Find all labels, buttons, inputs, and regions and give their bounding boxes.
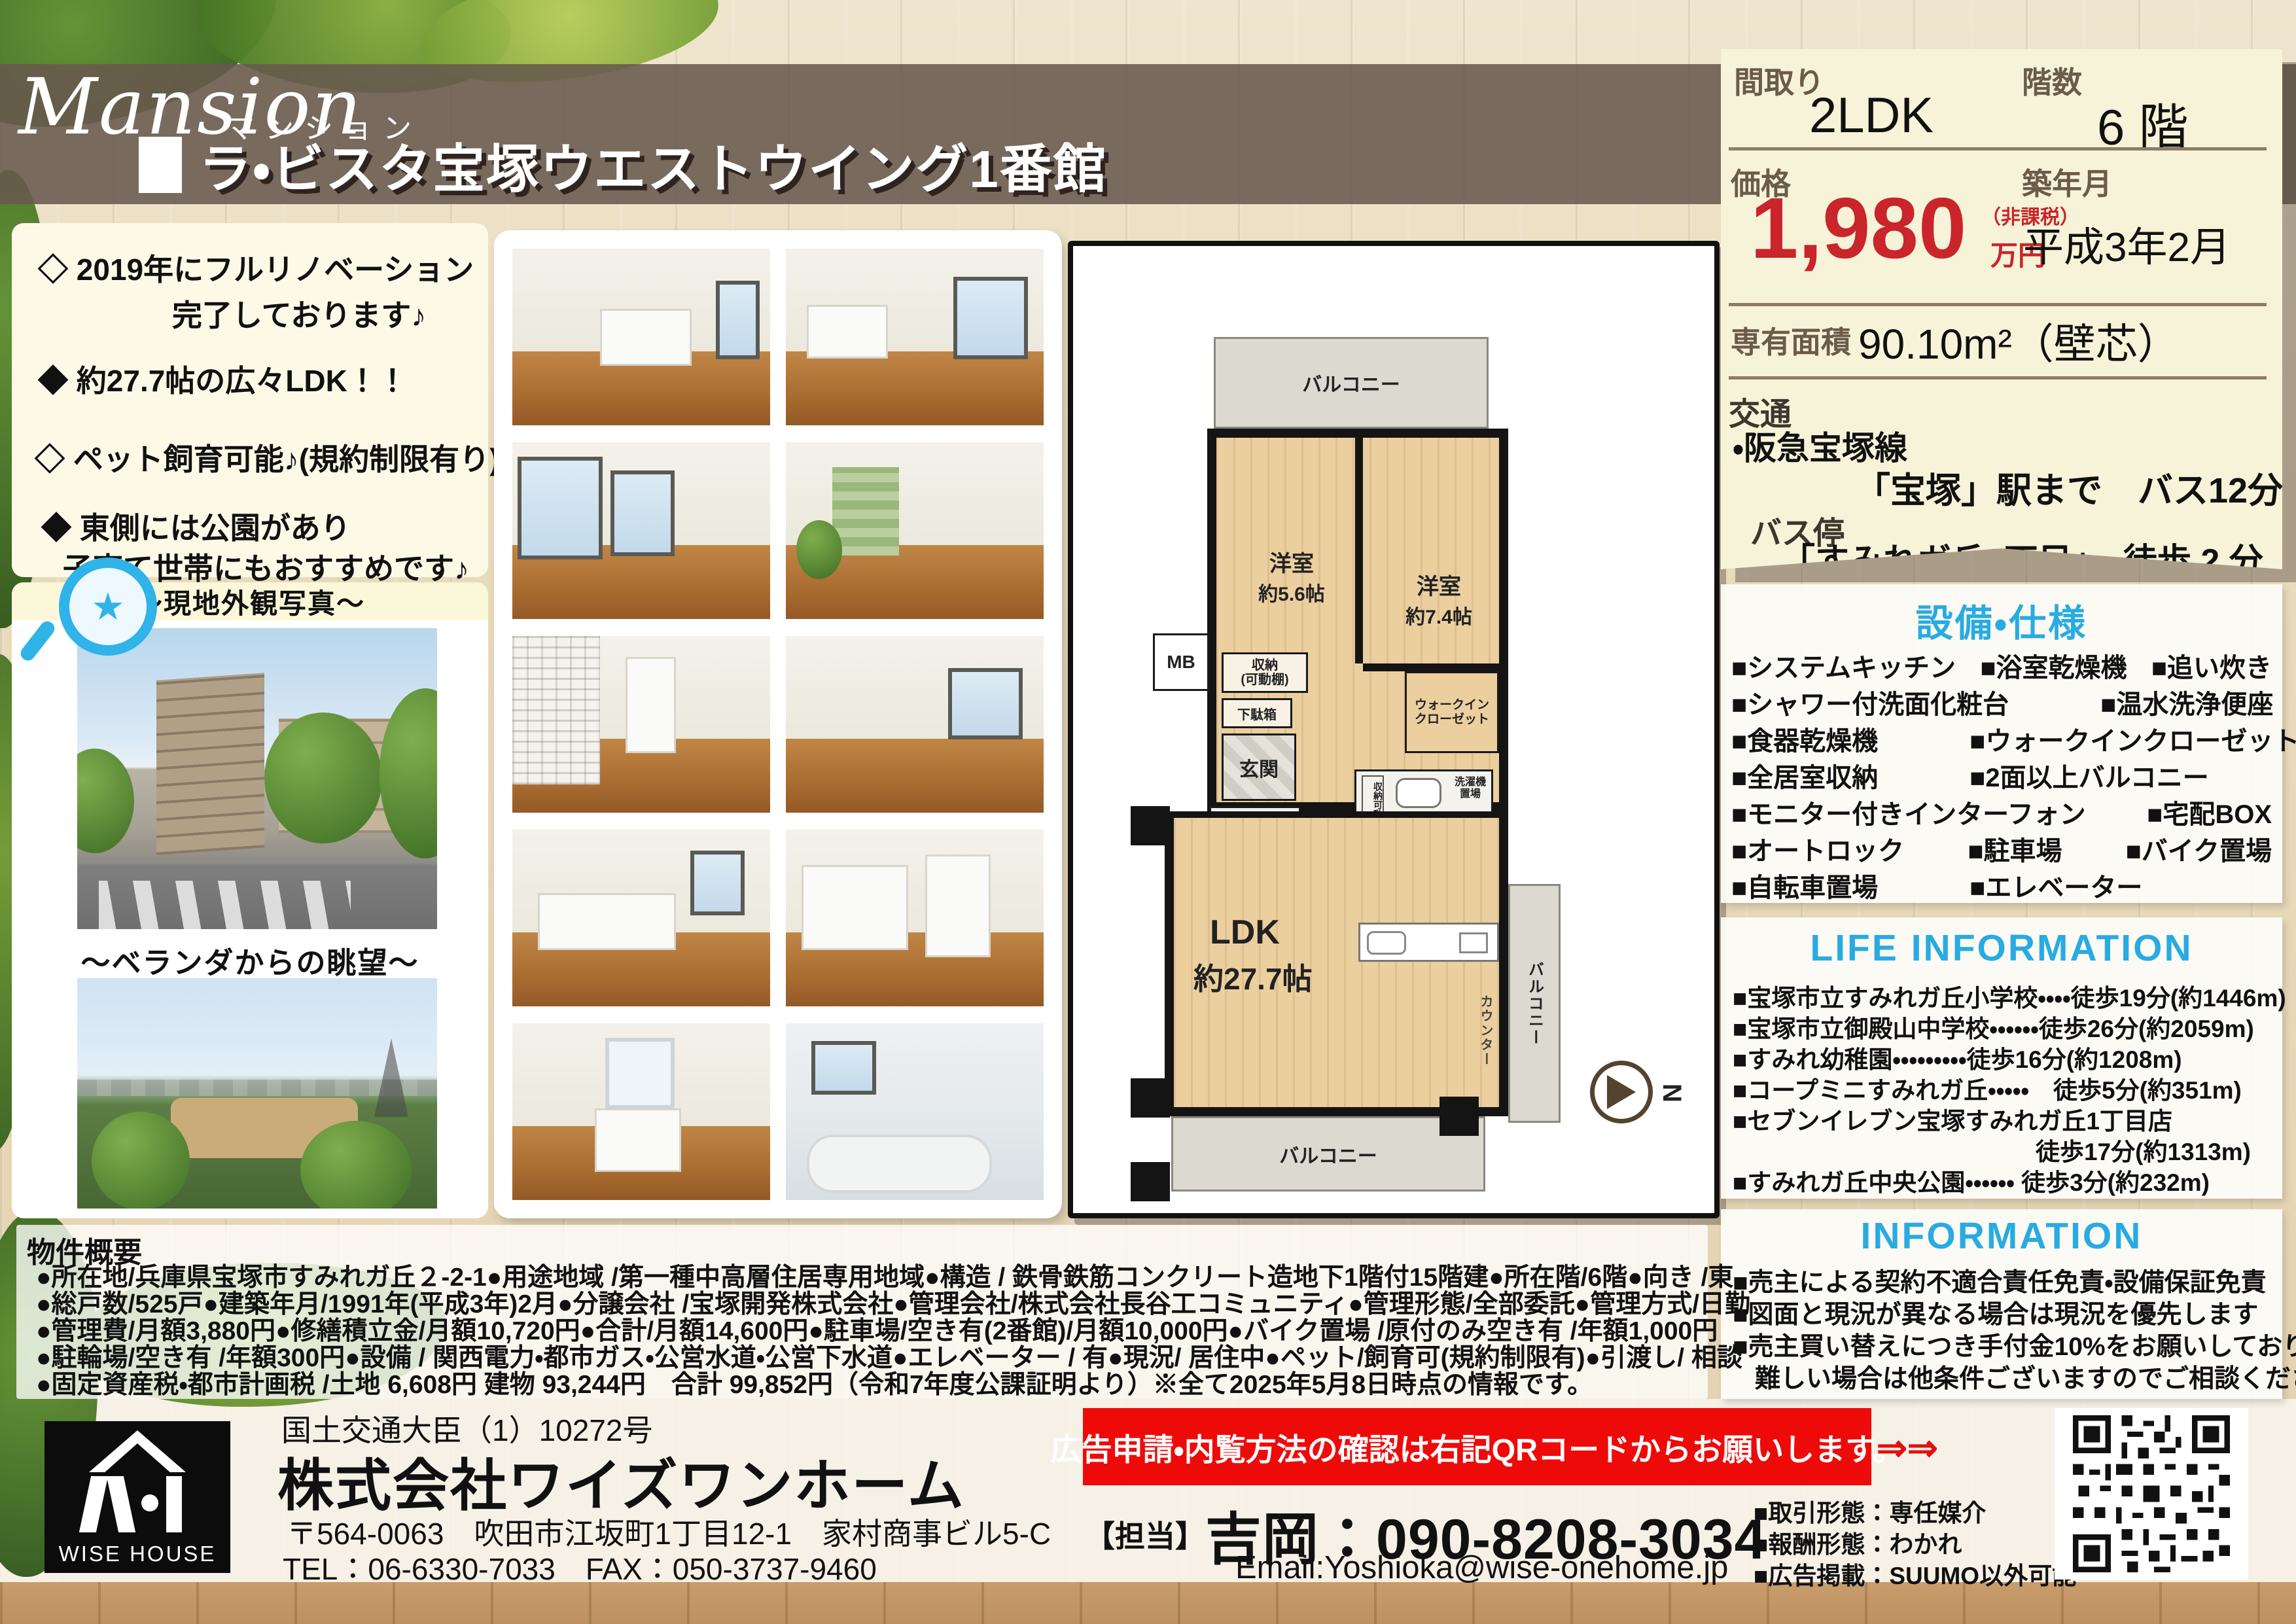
floorplan-balcony-bottom: バルコニー: [1171, 1116, 1485, 1192]
madori-value: 2LDK: [1809, 87, 1934, 144]
equipment-item: ■モニター付きインターフォン: [1731, 793, 2086, 831]
veranda-photo-label: ～ベランダからの眺望～: [12, 939, 488, 981]
window-shape: [953, 277, 1028, 359]
banner-arrows: ⇒⇒: [1877, 1426, 1938, 1470]
feature-park-line1: ◆ 東側には公園があり: [41, 504, 351, 548]
magnifier-handle: [18, 618, 57, 663]
floorplan-ldk-size: 約27.7帖: [1193, 955, 1313, 998]
senyu-value: 90.10m²（壁芯）: [1858, 311, 2180, 371]
life-item: ■コープミニすみれガ丘・・・・・ 徒歩5分(約351m): [1733, 1075, 2270, 1106]
company-name: 株式会社ワイズワンホーム: [277, 1439, 965, 1521]
deal-type: ■取引形態：専任媒介: [1754, 1493, 1986, 1528]
photo-living-windows: [512, 442, 770, 619]
title-square-icon: [139, 137, 182, 193]
equipment-item: ■エレベーター: [1969, 866, 2142, 904]
equipment-item: ■ウォークインクローゼット: [1969, 720, 2296, 758]
floorplan-rooms-block: 洋室 約5.6帖 洋室 約7.4帖 収納 (可動棚) 下駄箱 玄関 ウォークイン…: [1207, 429, 1508, 811]
photo-washbasin: [512, 1023, 770, 1200]
equipment-item: ■システムキッチン: [1731, 646, 1956, 684]
laundry-line2: 置場: [1460, 788, 1481, 800]
window-shape: [518, 457, 603, 560]
logo-dot: [141, 1494, 158, 1511]
photo-kitchen-counter: [512, 830, 770, 1006]
ad-policy: ■広告掲載：SUUMO以外可能: [1754, 1556, 2076, 1591]
window-shape: [811, 1041, 876, 1095]
wood-floor: [786, 351, 1044, 425]
shelf-shape: [802, 865, 909, 950]
equipment-item: ■全居室収納: [1731, 756, 1878, 794]
information-item: 難しい場合は他条件ございますのでご相談ください。: [1733, 1363, 2270, 1395]
qr-banner: 広告申請・内覧方法の確認は右記QRコードからお願いします。: [1083, 1408, 1871, 1485]
green-accent-wall-shape: [832, 467, 899, 556]
room2-size: 約7.4帖: [1383, 601, 1494, 629]
property-overview-panel: 物件概要 ●所在地/兵庫県宝塚市すみれガ丘２-2-1●用途地域 /第一種中高層住…: [16, 1225, 1708, 1399]
room1-name: 洋室: [1236, 546, 1347, 578]
floorplan-wic: ウォークイン クローゼット: [1405, 671, 1499, 753]
tree-shape: [264, 713, 382, 843]
feature-panel: ◇ 2019年にフルリノベーション 完了しております♪ ◆ 約27.7帖の広々L…: [12, 223, 488, 577]
photo-room-art-wall: [512, 636, 770, 813]
crosswalk-shape: [99, 881, 351, 929]
equipment-item: ■食器乾燥機: [1731, 720, 1878, 758]
information-item: ■売主買い替えにつき手付金10%をお願いしております。: [1733, 1331, 2270, 1363]
equipment-item: ■駐車場: [1968, 830, 2062, 868]
pillar: [1131, 806, 1170, 845]
information-item: ■図面と現況が異なる場合は現況を優先します: [1733, 1299, 2270, 1331]
property-overview-lines: ●所在地/兵庫県宝塚市すみれガ丘２-2-1●用途地域 /第一種中高層住居専用地域…: [36, 1264, 1750, 1398]
compass-icon: [1590, 1061, 1653, 1123]
qr-banner-text: 広告申請・内覧方法の確認は右記QRコードからお願いします。: [1051, 1424, 1904, 1470]
sink-shape: [1367, 931, 1406, 955]
overview-line: ●駐輪場/空き有 /年額300円●設備 / 関西電力・都市ガス・公営水道・公営下…: [36, 1345, 1750, 1371]
logo-letterform: [79, 1476, 108, 1532]
qr-code-svg: [2073, 1415, 2230, 1572]
site-photo-panel: ～現地外観写真～ ★ ～ベランダからの眺望～: [12, 582, 488, 1218]
life-information-list: ■宝塚市立すみれガ丘小学校・・・・徒歩19分(約1446m) ■宝塚市立御殿山中…: [1733, 983, 2270, 1198]
senyu-label: 専有面積: [1731, 319, 1851, 362]
floorplan-storage1: 収納 (可動棚): [1222, 652, 1308, 693]
company-logo: WISE HOUSE: [44, 1421, 230, 1573]
overview-line: ●総戸数/525戸●建築年月/1991年(平成3年)2月●分譲会社 /宝塚開発株…: [36, 1291, 1750, 1318]
feature-renovation-line1: ◇ 2019年にフルリノベーション: [38, 246, 474, 289]
life-information-panel: LIFE INFORMATION ■宝塚市立すみれガ丘小学校・・・・徒歩19分(…: [1721, 917, 2282, 1199]
kitchen-island-shape: [600, 309, 692, 366]
laundry-line1: 洗濯機: [1455, 777, 1486, 788]
information-list: ■売主による契約不適合責任免責・設備保証免責 ■図面と現況が異なる場合は現況を優…: [1733, 1267, 2270, 1395]
life-item-distance: 徒歩17分(約1313m): [1733, 1137, 2270, 1167]
information-item: ■売主による契約不適合責任免責・設備保証免責: [1733, 1267, 2270, 1299]
tree-shape: [300, 1121, 412, 1209]
tree-shape: [92, 1112, 190, 1209]
floorplan-genkan: 玄関: [1222, 733, 1296, 801]
stove-shape: [1459, 932, 1488, 953]
pillar: [1439, 1097, 1479, 1136]
feature-renovation-line2: 完了しております♪: [172, 292, 426, 335]
life-item: ■すみれ幼稚園・・・・・・・・・徒歩16分(約1208m): [1733, 1044, 2270, 1075]
equipment-item: ■オートロック: [1731, 830, 1904, 868]
window-shape: [716, 281, 760, 359]
life-item: ■宝塚市立すみれガ丘小学校・・・・徒歩19分(約1446m): [1733, 983, 2270, 1014]
flyer-page: Mansion マンション ラ・ビスタ宝塚ウエストウイング1番館 ◇ 2019年…: [0, 0, 2296, 1624]
equipment-item: ■自転車置場: [1731, 866, 1878, 904]
equipment-row: ■オートロック ■駐車場 ■バイク置場: [1731, 830, 2272, 867]
compass-north-label: N: [1657, 1084, 1686, 1103]
key-info-ribbon: 間取り 2LDK 階数 6 階 価格 1,980 （非課税） 万円 築年月 平成…: [1721, 49, 2282, 569]
wic-line1: ウォークイン: [1415, 698, 1489, 712]
room-divider-wall: [1355, 438, 1363, 663]
photo-ldk-dining: [786, 249, 1044, 425]
room1-size: 約5.6帖: [1236, 578, 1347, 607]
interior-photo-grid: [494, 230, 1062, 1218]
equipment-item: ■2面以上バルコニー: [1969, 756, 2209, 794]
pillar: [1131, 1078, 1170, 1118]
floorplan-room2: 洋室 約7.4帖: [1383, 569, 1494, 629]
logo-text: WISE HOUSE: [44, 1542, 230, 1566]
equipment-row: ■全居室収納 ■2面以上バルコニー: [1731, 757, 2272, 794]
overview-line: ●管理費/月額3,880円●修繕積立金/月額10,720円●合計/月額14,60…: [36, 1318, 1750, 1345]
plant-shape: [796, 520, 842, 579]
equipment-row: ■自転車置場 ■エレベーター: [1731, 867, 2272, 904]
building-shape: [156, 673, 264, 855]
property-name: ラ・ビスタ宝塚ウエストウイング1番館: [199, 127, 1107, 203]
information-title: INFORMATION: [1721, 1214, 2282, 1258]
pattern-accent-wall-shape: [512, 636, 600, 785]
exterior-photo-label: ～現地外観写真～: [135, 582, 365, 622]
equipment-item: ■宅配BOX: [2147, 793, 2272, 831]
wic-line2: クローゼット: [1415, 713, 1489, 726]
photo-ldk-kitchen-island: [512, 249, 770, 425]
divider: [1729, 376, 2267, 380]
fee-type: ■報酬形態：わかれ: [1754, 1525, 1962, 1560]
floorplan-ldk-block: LDK 約27.7帖 カウンター: [1165, 811, 1508, 1116]
divider: [1729, 147, 2267, 150]
equipment-item: ■追い炊き: [2151, 646, 2272, 684]
equipment-row: ■モニター付きインターフォン ■宅配BOX: [1731, 794, 2272, 830]
exterior-photo: [77, 628, 437, 929]
logo-letterform: [166, 1476, 182, 1532]
equipment-item: ■シャワー付洗面化粧台: [1731, 683, 2009, 721]
floorplan-balcony-top: バルコニー: [1214, 337, 1489, 429]
equipment-row: ■食器乾燥機 ■ウォークインクローゼット: [1731, 720, 2272, 757]
cabinet-shape: [925, 855, 991, 957]
floorplan-laundry: 洗濯機 置場: [1455, 777, 1486, 800]
kitchen-counter-shape: [807, 305, 888, 359]
power-pylon-shape: [374, 1038, 408, 1117]
overview-line: ●所在地/兵庫県宝塚市すみれガ丘２-2-1●用途地域 /第一種中高層住居専用地域…: [36, 1264, 1750, 1291]
storage1-line2: (可動棚): [1241, 673, 1288, 687]
property-title-row: ラ・ビスタ宝塚ウエストウイング1番館: [139, 127, 1107, 203]
washbasin-shape: [1396, 778, 1441, 808]
magnifier-star-icon: ★: [59, 557, 157, 656]
floorplan-balcony-right: バルコニー: [1508, 884, 1561, 1123]
photo-bathroom: [786, 1023, 1044, 1200]
window-shape: [690, 851, 745, 915]
photo-bedroom-window: [786, 636, 1044, 813]
life-item: ■宝塚市立御殿山中学校・・・・・・徒歩26分(約2059m): [1733, 1014, 2270, 1044]
equipment-item: ■浴室乾燥機: [1980, 646, 2127, 684]
window-shape: [948, 668, 1023, 739]
overview-line: ●固定資産税・都市計画税 /土地 6,608円 建物 93,244円 合計 99…: [36, 1371, 1750, 1398]
kitchen-counter-shape: [1358, 923, 1499, 962]
contact-label: 【担当】: [1085, 1513, 1205, 1556]
photo-room-accent-shelf: [786, 442, 1044, 619]
tree-shape: [77, 749, 134, 853]
information-panel: INFORMATION ■売主による契約不適合責任免責・設備保証免責 ■図面と現…: [1721, 1209, 2282, 1399]
floorplan-getabako: 下駄箱: [1222, 698, 1292, 728]
wood-floor: [786, 739, 1044, 813]
contact-email: Email:Yoshioka@wise-onehome.jp: [1235, 1549, 1728, 1586]
chikunengetsu-label: 築年月: [2022, 160, 2112, 203]
compass-needle: [1607, 1075, 1636, 1109]
house-roof-inner: [103, 1443, 171, 1474]
equipment-item: ■バイク置場: [2126, 830, 2272, 868]
vanity-cabinet-shape: [595, 1108, 681, 1173]
floor-plan: バルコニー バルコニー バルコニー 洋室 約5.6帖 洋室 約7.4帖 収納 (…: [1068, 241, 1720, 1218]
feature-ldk: ◆ 約27.7帖の広々LDK！！: [38, 357, 408, 400]
kitchen-counter-shape: [538, 893, 676, 950]
floorplan-ldk-name: LDK: [1210, 913, 1280, 952]
balcony-door-shape: [610, 470, 675, 556]
floorplan-mb: MB: [1153, 633, 1209, 691]
star-glyph: ★: [91, 584, 125, 629]
life-item: ■セブンイレブン宝塚すみれガ丘1丁目店: [1733, 1106, 2270, 1137]
qr-code: [2055, 1408, 2248, 1580]
equipment-list: ■システムキッチン ■浴室乾燥機 ■追い炊き ■シャワー付洗面化粧台 ■温水洗浄…: [1731, 647, 2272, 904]
storage1-line1: 収納: [1252, 658, 1278, 673]
equipment-panel: 設備・仕様 ■システムキッチン ■浴室乾燥機 ■追い炊き ■シャワー付洗面化粧台…: [1721, 584, 2282, 903]
equipment-row: ■シャワー付洗面化粧台 ■温水洗浄便座: [1731, 684, 2272, 720]
equipment-item: ■温水洗浄便座: [2100, 683, 2273, 721]
chikunengetsu-value: 平成3年2月: [2023, 214, 2231, 273]
pillar: [1131, 1162, 1170, 1201]
logo-letterform: [107, 1476, 135, 1532]
equipment-title: 設備・仕様: [1721, 593, 2282, 647]
company-tel-fax: TEL：06-6330-7033 FAX：050-3737-9460: [283, 1545, 877, 1589]
kaisu-label: 階数: [2022, 59, 2082, 102]
divider: [1729, 303, 2267, 306]
floorplan-room1: 洋室 約5.6帖: [1236, 546, 1347, 607]
wall: [1363, 663, 1499, 671]
doorway-shape: [626, 657, 676, 752]
life-information-title: LIFE INFORMATION: [1721, 927, 2282, 970]
room2-name: 洋室: [1383, 569, 1494, 601]
floorplan-counter-label: カウンター: [1476, 995, 1495, 1067]
mirror-shape: [605, 1038, 675, 1109]
feature-pets: ◇ ペット飼育可能♪(規約制限有り): [35, 436, 499, 479]
equipment-row: ■システムキッチン ■浴室乾燥機 ■追い炊き: [1731, 647, 2272, 684]
kotsu-line2: 「宝塚」駅まで バス12分: [1855, 461, 2283, 513]
bathtub-shape: [807, 1135, 993, 1193]
photo-storage-shelves: [786, 830, 1044, 1006]
tree-shape: [380, 688, 437, 858]
price-value: 1,980: [1750, 179, 1966, 277]
life-item: ■すみれガ丘中央公園・・・・・・ 徒歩3分(約232m): [1733, 1167, 2270, 1198]
veranda-view-photo: [77, 978, 437, 1209]
